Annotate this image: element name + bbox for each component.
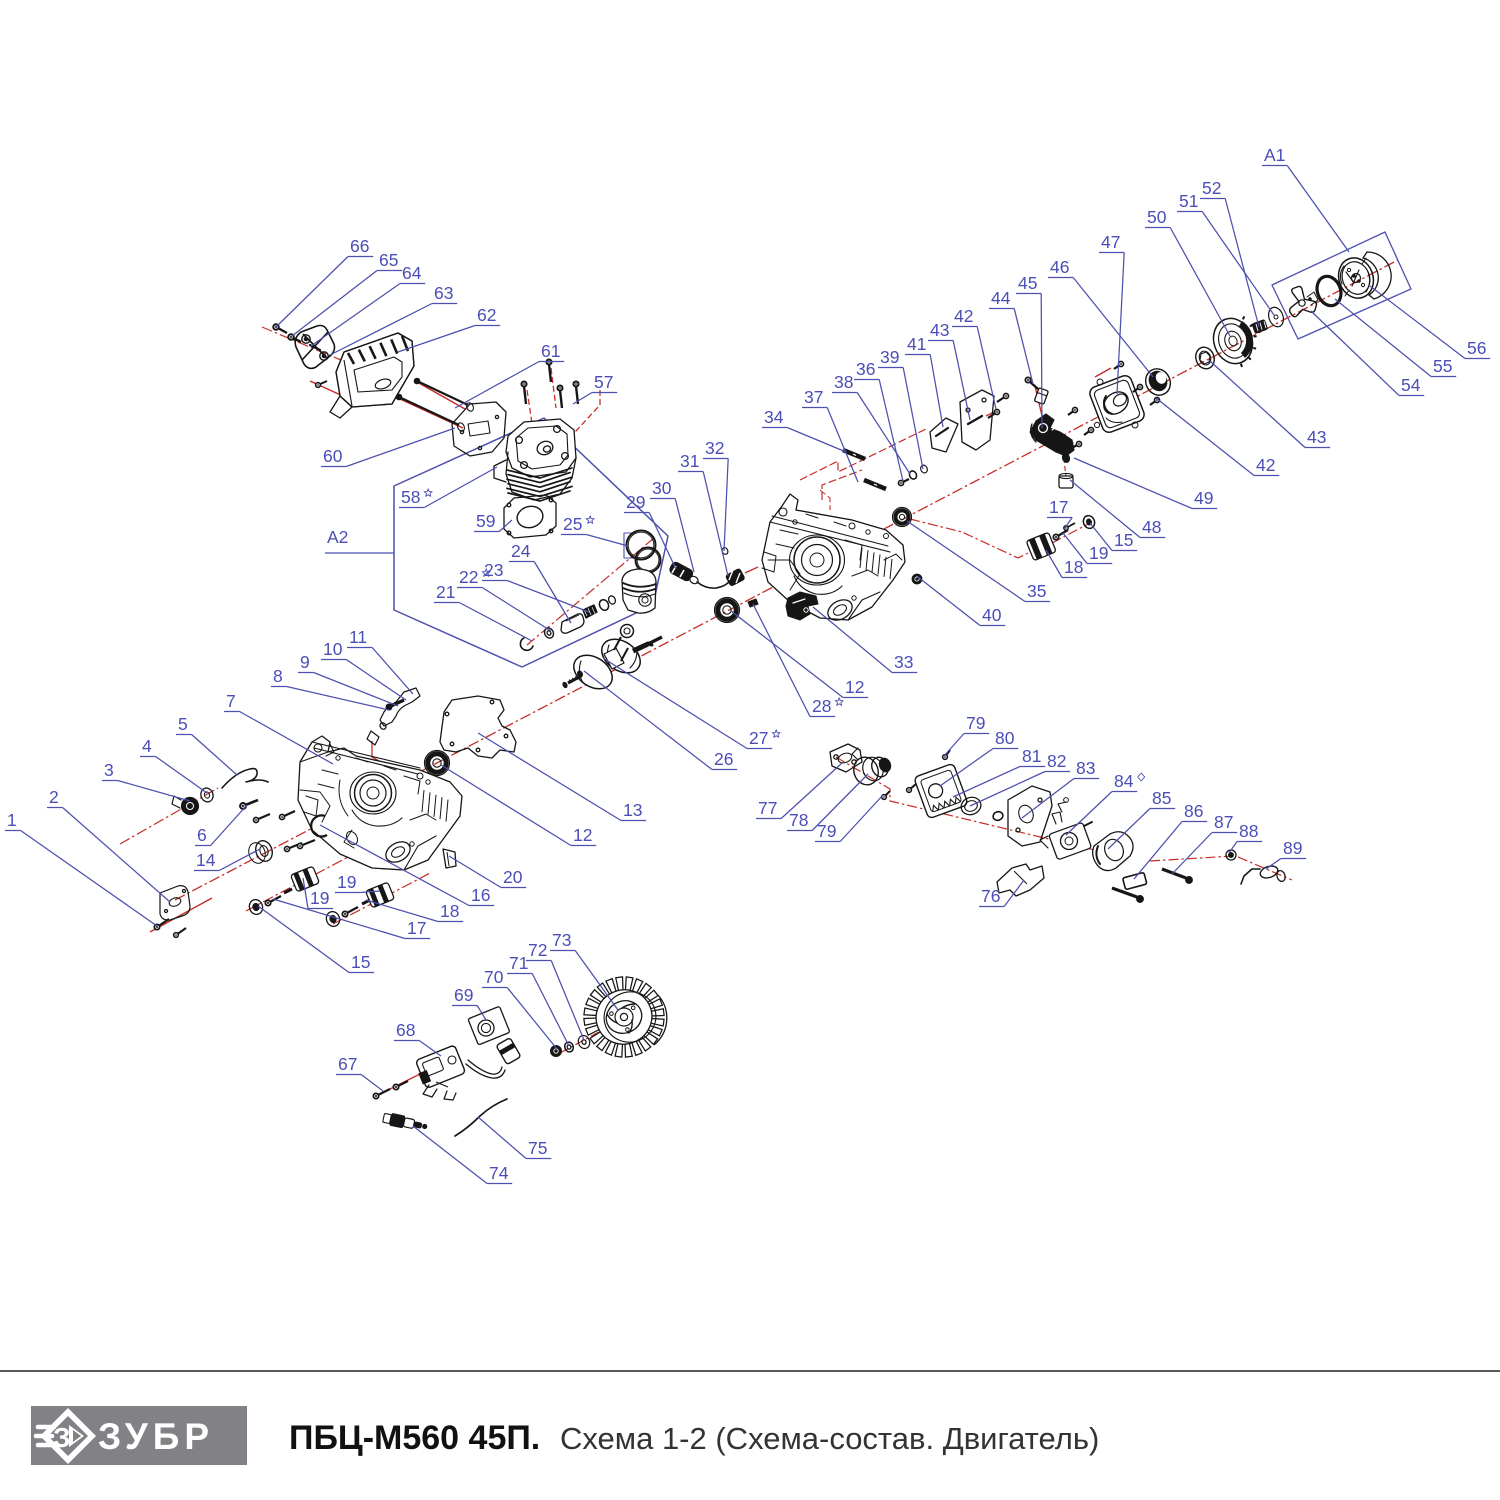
svg-text:70: 70 [484,967,504,987]
svg-text:36: 36 [856,359,875,379]
svg-text:56: 56 [1467,338,1486,358]
svg-text:16: 16 [471,885,490,905]
svg-text:29: 29 [626,492,645,512]
svg-text:6: 6 [197,825,207,845]
svg-text:48: 48 [1142,517,1161,537]
svg-text:7: 7 [226,691,236,711]
svg-text:37: 37 [804,387,823,407]
svg-text:81: 81 [1022,746,1041,766]
svg-text:10: 10 [323,639,343,659]
svg-text:40: 40 [982,605,1002,625]
svg-text:69: 69 [454,985,473,1005]
svg-text:38: 38 [834,372,853,392]
svg-text:Схема 1-2 (Схема-состав. Двига: Схема 1-2 (Схема-состав. Двигатель) [560,1421,1099,1456]
svg-text:ЗУБР: ЗУБР [98,1416,214,1457]
svg-text:76: 76 [981,886,1000,906]
svg-text:2: 2 [49,787,59,807]
svg-text:34: 34 [764,407,784,427]
svg-text:83: 83 [1076,758,1095,778]
svg-text:79: 79 [817,821,836,841]
svg-text:62: 62 [477,305,496,325]
svg-text:77: 77 [758,798,777,818]
svg-text:A1: A1 [1264,145,1285,165]
svg-text:43: 43 [1307,427,1326,447]
svg-text:22: 22 [459,567,478,587]
svg-text:52: 52 [1202,178,1221,198]
svg-text:33: 33 [894,652,913,672]
svg-text:88: 88 [1239,821,1258,841]
svg-text:73: 73 [552,930,571,950]
svg-text:18: 18 [440,901,459,921]
svg-text:ПБЦ-М560 45П.: ПБЦ-М560 45П. [289,1419,540,1457]
svg-text:86: 86 [1184,801,1203,821]
svg-text:68: 68 [396,1020,415,1040]
svg-text:59: 59 [476,511,495,531]
svg-text:42: 42 [954,306,973,326]
svg-text:60: 60 [323,446,343,466]
svg-text:49: 49 [1194,488,1213,508]
svg-text:24: 24 [511,541,531,561]
svg-text:47: 47 [1101,232,1120,252]
svg-text:72: 72 [528,940,547,960]
svg-text:71: 71 [509,953,528,973]
svg-text:11: 11 [349,627,367,647]
svg-text:14: 14 [196,850,216,870]
svg-text:89: 89 [1283,838,1302,858]
svg-text:З: З [53,1422,71,1453]
svg-text:64: 64 [402,263,422,283]
svg-text:74: 74 [489,1163,509,1183]
svg-text:78: 78 [789,810,808,830]
svg-text:42: 42 [1256,455,1275,475]
svg-text:58: 58 [401,487,420,507]
svg-text:19: 19 [310,888,329,908]
svg-text:15: 15 [1114,530,1133,550]
svg-text:54: 54 [1401,375,1421,395]
svg-text:31: 31 [680,451,699,471]
svg-text:4: 4 [142,736,152,756]
svg-text:67: 67 [338,1054,357,1074]
svg-text:28: 28 [812,696,831,716]
svg-text:35: 35 [1027,581,1046,601]
svg-text:55: 55 [1433,356,1452,376]
svg-text:A2: A2 [327,527,348,547]
svg-text:39: 39 [880,347,899,367]
svg-text:9: 9 [300,652,310,672]
svg-text:8: 8 [273,666,283,686]
svg-text:80: 80 [995,728,1015,748]
svg-text:13: 13 [623,800,642,820]
svg-text:87: 87 [1214,812,1233,832]
svg-text:57: 57 [594,372,613,392]
svg-text:43: 43 [930,320,949,340]
svg-text:25: 25 [563,514,582,534]
svg-text:84: 84 [1114,771,1134,791]
svg-text:15: 15 [351,952,370,972]
svg-text:32: 32 [705,438,724,458]
svg-text:1: 1 [7,810,17,830]
svg-text:18: 18 [1064,557,1083,577]
svg-text:26: 26 [714,749,733,769]
svg-text:20: 20 [503,867,523,887]
svg-text:5: 5 [178,714,188,734]
svg-text:61: 61 [541,341,560,361]
svg-text:65: 65 [379,250,398,270]
svg-text:17: 17 [407,918,426,938]
svg-text:27: 27 [749,728,768,748]
svg-text:82: 82 [1047,751,1066,771]
svg-text:85: 85 [1152,788,1171,808]
svg-text:79: 79 [966,713,985,733]
svg-text:17: 17 [1049,497,1068,517]
svg-text:75: 75 [528,1138,547,1158]
svg-text:19: 19 [1089,543,1108,563]
svg-text:51: 51 [1179,191,1198,211]
svg-text:66: 66 [350,236,369,256]
svg-text:21: 21 [436,582,455,602]
svg-text:63: 63 [434,283,453,303]
svg-text:46: 46 [1050,257,1069,277]
svg-text:3: 3 [104,760,114,780]
svg-text:41: 41 [907,334,926,354]
svg-text:12: 12 [845,677,864,697]
svg-text:19: 19 [337,872,356,892]
svg-text:12: 12 [573,825,592,845]
svg-text:50: 50 [1147,207,1167,227]
svg-text:45: 45 [1018,273,1037,293]
svg-text:44: 44 [991,288,1011,308]
svg-text:30: 30 [652,478,672,498]
